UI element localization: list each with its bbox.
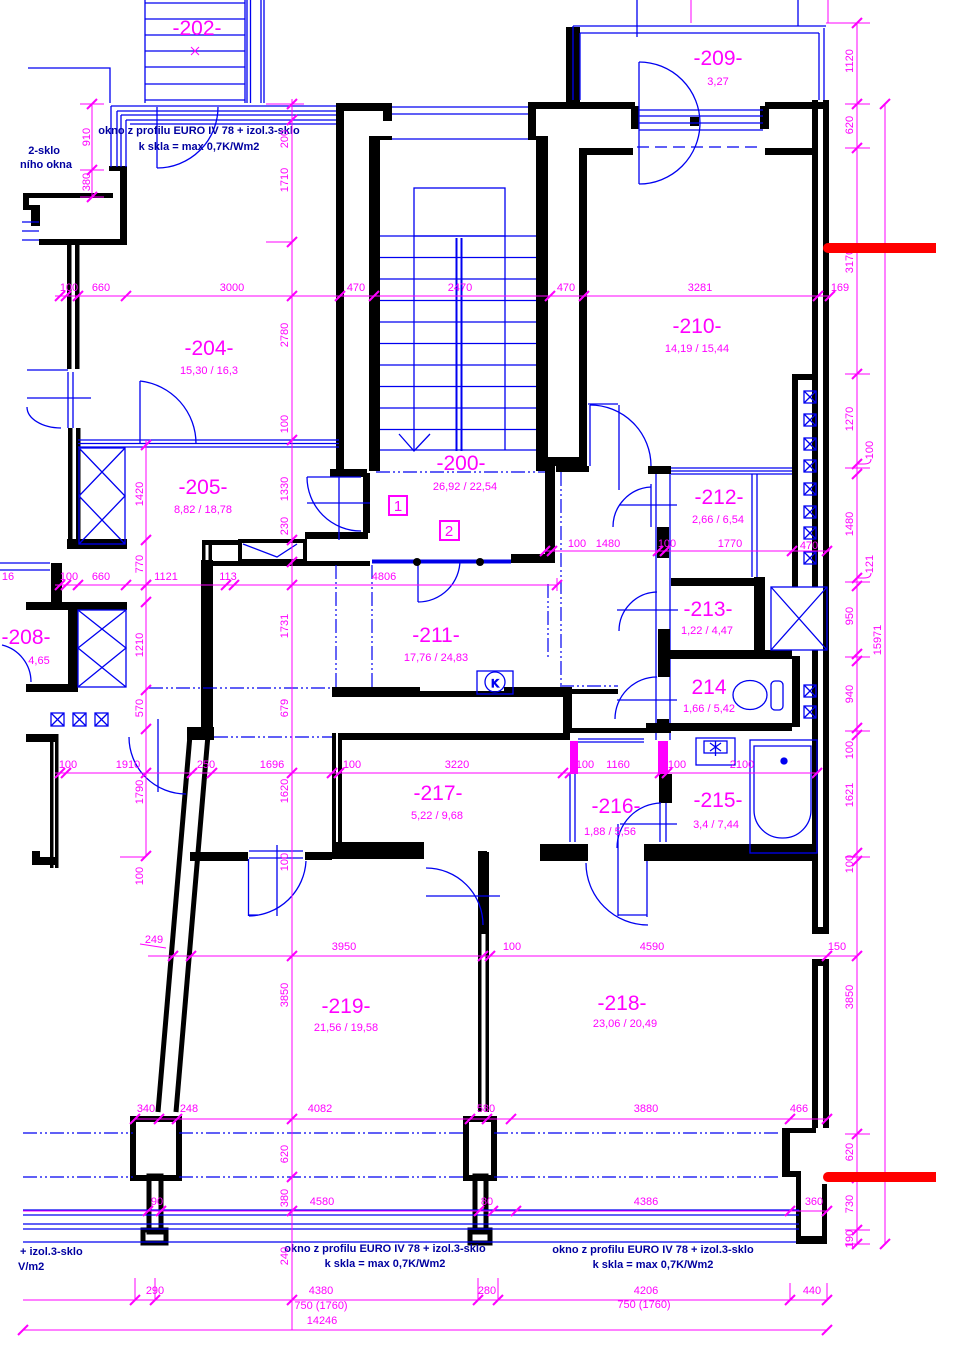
svg-text:-208-: -208- [1,626,50,649]
svg-text:-202-: -202- [172,17,221,40]
svg-text:200: 200 [279,130,291,148]
svg-text:3850: 3850 [279,983,291,1007]
svg-text:2,66 / 6,54: 2,66 / 6,54 [692,514,744,526]
svg-text:190: 190 [844,1230,856,1248]
svg-text:1621: 1621 [844,783,856,807]
svg-text:3000: 3000 [220,282,244,294]
svg-text:3220: 3220 [445,759,469,771]
svg-text:1120: 1120 [844,49,856,73]
svg-text:80: 80 [481,1196,493,1208]
svg-text:620: 620 [844,116,856,134]
svg-text:4380: 4380 [309,1285,333,1297]
svg-text:950: 950 [844,607,856,625]
svg-text:380: 380 [279,1189,291,1207]
svg-text:4590: 4590 [640,941,664,953]
svg-text:2100: 2100 [730,759,754,771]
svg-text:-212-: -212- [694,486,743,509]
svg-text:4206: 4206 [634,1285,658,1297]
svg-text:280: 280 [478,1285,496,1297]
svg-text:1160: 1160 [606,759,630,771]
svg-text:-215-: -215- [693,789,742,812]
svg-text:290: 290 [146,1285,164,1297]
svg-text:340: 340 [137,1103,155,1115]
svg-text:940: 940 [844,685,856,703]
svg-text:21,56 / 19,58: 21,56 / 19,58 [314,1022,378,1034]
svg-text:250: 250 [197,759,215,771]
svg-text:16: 16 [2,571,14,583]
svg-text:26,92 / 22,54: 26,92 / 22,54 [433,481,497,493]
svg-text:3950: 3950 [332,941,356,953]
svg-text:-218-: -218- [597,992,646,1015]
svg-text:214: 214 [691,676,726,699]
svg-text:-211-: -211- [412,624,459,647]
svg-text:910: 910 [81,128,93,146]
svg-text:100: 100 [279,853,291,871]
svg-text:100: 100 [134,867,146,885]
svg-text:150: 150 [828,941,846,953]
svg-text:360: 360 [805,1196,823,1208]
svg-text:14,19 / 15,44: 14,19 / 15,44 [665,343,729,355]
svg-text:1910: 1910 [116,759,140,771]
svg-text:679: 679 [279,699,291,717]
svg-text:3850: 3850 [844,985,856,1009]
svg-text:1710: 1710 [279,168,291,192]
svg-text:100: 100 [576,759,594,771]
svg-text:100: 100 [864,441,876,459]
svg-text:8,82 / 18,78: 8,82 / 18,78 [174,504,232,516]
svg-text:470: 470 [800,540,818,552]
svg-text:1270: 1270 [844,407,856,431]
svg-text:100: 100 [279,415,291,433]
svg-text:249: 249 [145,934,163,946]
svg-text:1,22 / 4,47: 1,22 / 4,47 [681,625,733,637]
svg-text:770: 770 [134,555,146,573]
svg-text:1,66 / 5,42: 1,66 / 5,42 [683,703,735,715]
svg-text:100: 100 [60,282,78,294]
svg-text:k skla = max 0,7K/Wm2: k skla = max 0,7K/Wm2 [593,1259,714,1271]
svg-text:+ izol.3-sklo: + izol.3-sklo [20,1246,83,1258]
svg-text:90: 90 [151,1196,163,1208]
svg-text:15971: 15971 [872,625,884,656]
svg-text:3,27: 3,27 [707,76,728,88]
svg-text:1620: 1620 [279,779,291,803]
svg-text:k skla = max 0,7K/Wm2: k skla = max 0,7K/Wm2 [139,141,260,153]
svg-text:100: 100 [60,571,78,583]
svg-text:1330: 1330 [279,477,291,501]
svg-text:730: 730 [844,1195,856,1213]
svg-text:1,88 / 5,56: 1,88 / 5,56 [584,826,636,838]
svg-text:230: 230 [279,517,291,535]
svg-text:2: 2 [445,523,453,540]
svg-text:620: 620 [844,1143,856,1161]
svg-text:1: 1 [394,498,402,515]
svg-text:2780: 2780 [279,323,291,347]
svg-text:23,06 / 20,49: 23,06 / 20,49 [593,1018,657,1030]
svg-text:440: 440 [803,1285,821,1297]
svg-text:570: 570 [134,699,146,717]
svg-text:-216-: -216- [591,795,640,818]
svg-text:5,22 / 9,68: 5,22 / 9,68 [411,810,463,822]
svg-text:1480: 1480 [596,538,620,550]
svg-text:240: 240 [279,1247,291,1265]
svg-text:1731: 1731 [279,614,291,638]
svg-text:100: 100 [844,855,856,873]
svg-text:ního okna: ního okna [20,159,73,171]
svg-text:17,76 / 24,83: 17,76 / 24,83 [404,652,468,664]
svg-text:-217-: -217- [413,782,462,805]
svg-text:okno z profilu EURO IV 78 + iz: okno z profilu EURO IV 78 + izol.3-sklo [284,1243,486,1255]
svg-text:2470: 2470 [448,282,472,294]
svg-text:1210: 1210 [134,633,146,657]
svg-text:248: 248 [180,1103,198,1115]
svg-text:-210-: -210- [672,315,721,338]
svg-text:4806: 4806 [372,571,396,583]
svg-text:K: K [491,678,499,690]
svg-text:100: 100 [343,759,361,771]
svg-text:750 (1760): 750 (1760) [617,1299,670,1311]
svg-text:4580: 4580 [310,1196,334,1208]
svg-text:380: 380 [81,173,93,191]
svg-text:1696: 1696 [260,759,284,771]
svg-text:okno z profilu EURO IV 78 + iz: okno z profilu EURO IV 78 + izol.3-sklo [98,125,300,137]
svg-text:okno z profilu EURO IV 78 + iz: okno z profilu EURO IV 78 + izol.3-sklo [552,1244,754,1256]
svg-text:4082: 4082 [308,1103,332,1115]
svg-text:1770: 1770 [718,538,742,550]
svg-text:100: 100 [568,538,586,550]
svg-text:2-sklo: 2-sklo [28,145,60,157]
svg-text:-205-: -205- [178,476,227,499]
svg-text:-204-: -204- [184,337,233,360]
svg-text:V/m2: V/m2 [18,1261,44,1273]
svg-text:1121: 1121 [154,571,178,583]
svg-text:1420: 1420 [134,482,146,506]
svg-text:113: 113 [219,571,237,583]
svg-text:660: 660 [92,282,110,294]
svg-text:1790: 1790 [134,780,146,804]
svg-text:-200-: -200- [436,452,485,475]
svg-text:-213-: -213- [683,598,732,621]
svg-text:470: 470 [347,282,365,294]
svg-text:1480: 1480 [844,512,856,536]
svg-text:100: 100 [503,941,521,953]
svg-text:660: 660 [92,571,110,583]
svg-text:470: 470 [557,282,575,294]
svg-text:3281: 3281 [688,282,712,294]
svg-text:580: 580 [477,1103,495,1115]
svg-text:169: 169 [831,282,849,294]
svg-text:-219-: -219- [321,995,370,1018]
svg-text:121: 121 [864,555,876,573]
svg-text:100: 100 [59,759,77,771]
svg-text:620: 620 [279,1145,291,1163]
svg-text:15,30 / 16,3: 15,30 / 16,3 [180,365,238,377]
svg-text:4386: 4386 [634,1196,658,1208]
svg-text:750 (1760): 750 (1760) [294,1300,347,1312]
svg-text:3,4 / 7,44: 3,4 / 7,44 [693,819,739,831]
svg-text:14246: 14246 [307,1315,338,1327]
svg-text:4,65: 4,65 [28,655,49,667]
svg-text:466: 466 [790,1103,808,1115]
svg-text:k skla = max 0,7K/Wm2: k skla = max 0,7K/Wm2 [325,1258,446,1270]
svg-text:-209-: -209- [693,47,742,70]
svg-text:100: 100 [668,759,686,771]
svg-text:3880: 3880 [634,1103,658,1115]
svg-text:100: 100 [658,538,676,550]
svg-text:100: 100 [844,741,856,759]
